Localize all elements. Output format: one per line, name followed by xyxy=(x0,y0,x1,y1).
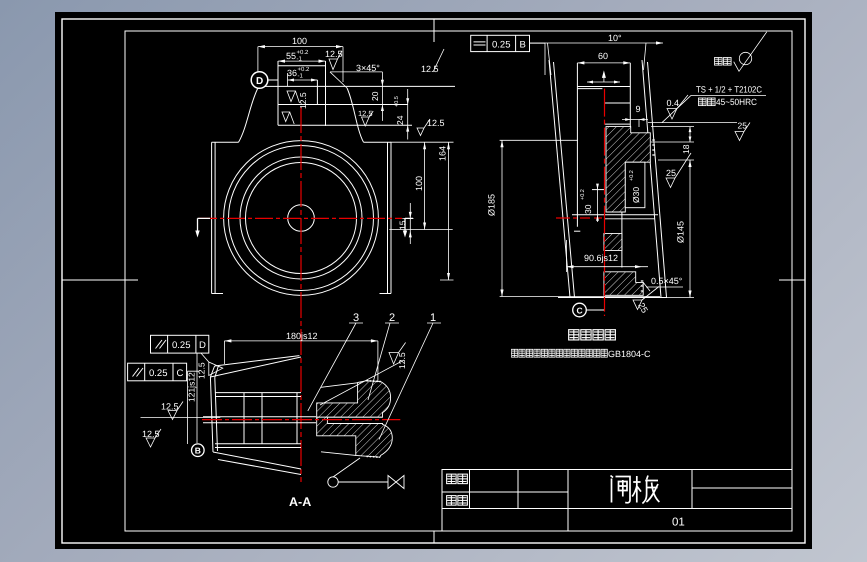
svg-text:25: 25 xyxy=(666,168,676,178)
svg-text:TS + 1/2 + T2102C: TS + 1/2 + T2102C xyxy=(696,85,762,95)
svg-text:90.6js12: 90.6js12 xyxy=(584,253,618,263)
svg-text:100: 100 xyxy=(414,176,424,191)
svg-text:Ø30: Ø30 xyxy=(631,187,641,203)
svg-text:0.25: 0.25 xyxy=(172,340,191,351)
svg-text:12.5: 12.5 xyxy=(197,362,207,379)
svg-text:45~50HRC: 45~50HRC xyxy=(716,97,757,107)
svg-text:180js12: 180js12 xyxy=(286,331,318,341)
svg-text:B: B xyxy=(520,39,526,50)
svg-text:12.5: 12.5 xyxy=(142,429,160,439)
svg-text:-1: -1 xyxy=(297,56,303,63)
svg-text:3: 3 xyxy=(353,312,359,324)
svg-text:D: D xyxy=(199,340,206,351)
svg-text:12.5: 12.5 xyxy=(397,352,407,369)
svg-text:C: C xyxy=(577,305,583,315)
svg-text:+0.2: +0.2 xyxy=(298,66,311,73)
svg-text:A-A: A-A xyxy=(289,495,311,509)
svg-text:18: 18 xyxy=(681,144,691,154)
svg-text:01: 01 xyxy=(672,517,685,529)
svg-text:-1: -1 xyxy=(298,73,304,80)
svg-text:164: 164 xyxy=(438,146,448,161)
svg-text:+0.5: +0.5 xyxy=(394,96,400,107)
svg-text:24: 24 xyxy=(395,115,405,125)
svg-text:+0.2: +0.2 xyxy=(629,170,635,181)
svg-text:D: D xyxy=(256,76,263,87)
svg-text:20: 20 xyxy=(370,91,380,101)
svg-text:10°: 10° xyxy=(608,33,622,43)
svg-text:121js12: 121js12 xyxy=(187,372,197,402)
svg-text:15: 15 xyxy=(398,220,408,230)
svg-text:9: 9 xyxy=(636,104,641,114)
svg-text:Ø145: Ø145 xyxy=(676,221,686,243)
svg-text:+0.2: +0.2 xyxy=(580,189,586,200)
svg-text:12.5: 12.5 xyxy=(161,402,179,412)
svg-text:36: 36 xyxy=(287,68,297,78)
svg-text:12.5: 12.5 xyxy=(298,92,308,109)
svg-text:GB1804-C: GB1804-C xyxy=(608,349,651,359)
svg-text:1: 1 xyxy=(430,312,436,324)
svg-text:2: 2 xyxy=(389,312,395,324)
svg-text:30: 30 xyxy=(583,204,593,214)
svg-text:100: 100 xyxy=(292,36,307,46)
svg-text:+0.2: +0.2 xyxy=(297,49,310,56)
svg-text:B: B xyxy=(195,446,201,456)
svg-text:Ø185: Ø185 xyxy=(487,194,497,216)
svg-text:60: 60 xyxy=(598,51,608,61)
svg-text:0.4: 0.4 xyxy=(667,98,680,108)
svg-text:0.25: 0.25 xyxy=(492,39,511,50)
svg-text:0.25: 0.25 xyxy=(149,368,168,379)
svg-text:3×45°: 3×45° xyxy=(356,63,380,73)
svg-text:55: 55 xyxy=(286,51,296,61)
svg-text:0.5×45°: 0.5×45° xyxy=(651,276,683,286)
svg-text:C: C xyxy=(177,368,184,379)
